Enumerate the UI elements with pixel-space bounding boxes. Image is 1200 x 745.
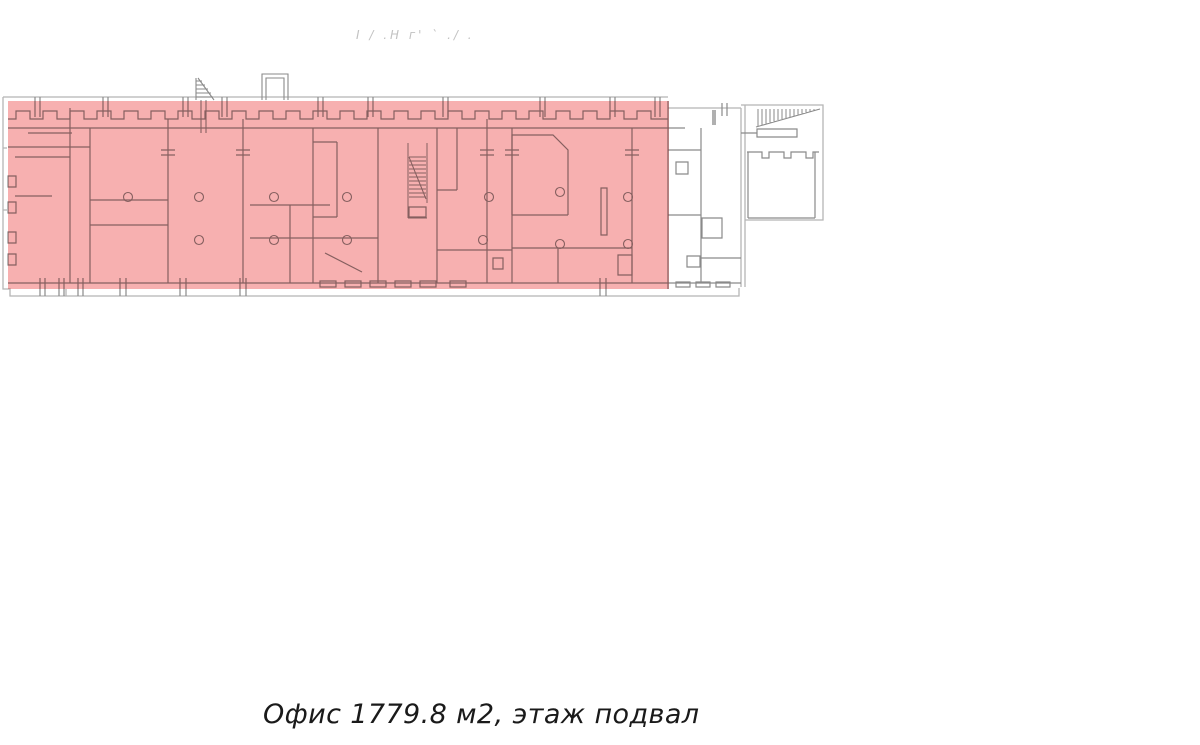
shaft-marker [712,110,716,125]
page: І / .Н г' ` ./ . [0,0,1200,745]
wing-walls [747,152,819,218]
entrance-bay-icon [262,74,288,100]
highlight-overlay[interactable] [8,101,669,289]
plan-caption: Офис 1779.8 м2, этаж подвал [263,699,699,730]
wing-stair-icon [756,109,820,127]
